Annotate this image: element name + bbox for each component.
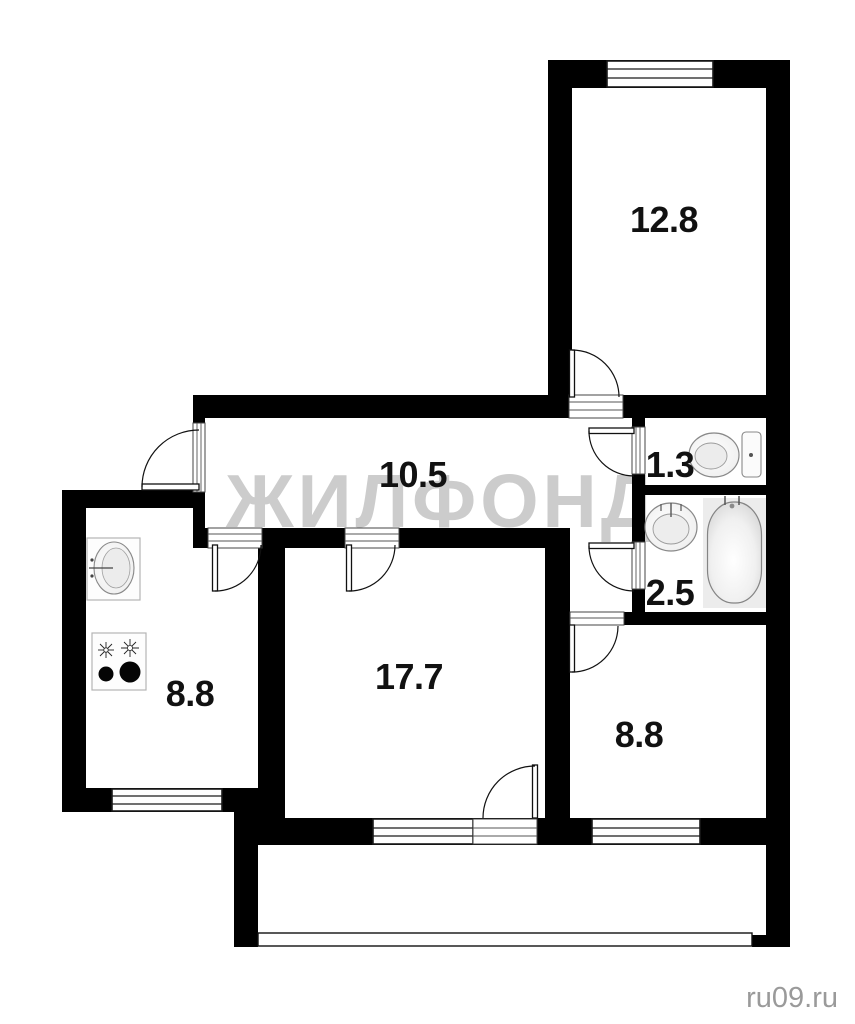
wall-segment (632, 485, 766, 495)
window-bedroom-bottom (592, 819, 700, 844)
wall-segment (752, 935, 790, 947)
door-frame-entrance (193, 423, 205, 492)
toilet-icon (689, 432, 761, 477)
window-bedroom-top (607, 61, 713, 87)
room-label-living-room: 17.7 (375, 656, 443, 697)
wall-segment (193, 395, 572, 418)
floor-plan-svg: ЖИЛФОНД (0, 0, 855, 1024)
wall-segment (545, 528, 570, 845)
balcony-railing (258, 933, 752, 946)
kitchen-sink-icon (87, 538, 140, 600)
room-label-bedroom-top: 12.8 (630, 199, 698, 240)
room-label-hallway: 10.5 (379, 454, 448, 495)
room-label-kitchen: 8.8 (166, 673, 215, 714)
bathtub-icon (703, 496, 766, 608)
wall-segment (234, 788, 258, 947)
door-frame-living-room (345, 528, 399, 548)
wall-segment (548, 60, 572, 418)
window-living-room (373, 819, 473, 844)
wall-segment (258, 528, 285, 845)
site-credit: ru09.ru (746, 982, 838, 1014)
wall-segment (62, 490, 86, 812)
washbasin-icon (645, 503, 697, 551)
room-label-toilet: 1.3 (646, 444, 695, 485)
room-label-bathroom: 2.5 (646, 572, 695, 613)
door-frame-bedroom-top (569, 395, 623, 418)
wall-segment (766, 60, 790, 947)
room-label-bedroom-bottom: 8.8 (615, 714, 664, 755)
door-frame-balcony (473, 819, 537, 844)
balcony (258, 933, 752, 946)
door-frame-bedroom-bottom (570, 612, 624, 625)
floor-plan-image: ЖИЛФОНД (0, 0, 855, 1024)
window-kitchen (112, 789, 222, 811)
stove-icon (92, 633, 146, 690)
